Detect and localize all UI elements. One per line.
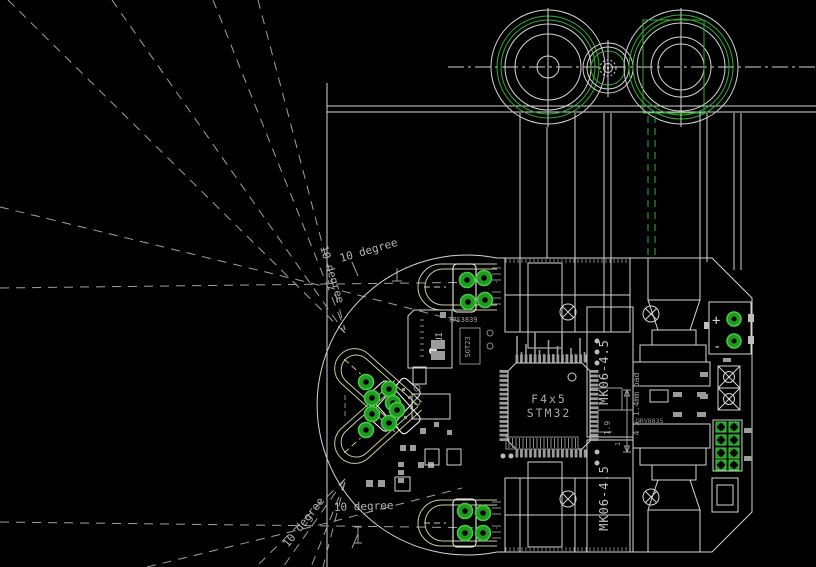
dim-gap-label: 1.9 (603, 421, 612, 436)
mounting-holes[interactable] (718, 366, 740, 410)
angle-label-diag-bottom: 10 degree (280, 495, 327, 550)
battery-connector[interactable]: + - (704, 302, 754, 355)
angle-label-front-top: 10 degree (338, 236, 399, 265)
motor-mount-bottom[interactable] (633, 424, 710, 552)
program-connector[interactable] (713, 420, 742, 471)
supervisor-package-label: SOT23 (464, 336, 472, 357)
voltage-supervisor[interactable]: TPS3839 SOT23 (448, 316, 480, 364)
mcu-label-line2: STM32 (527, 406, 572, 420)
dim-one-label: 1 (614, 442, 622, 446)
angle-label-front-bottom: 10 degree (334, 499, 394, 514)
sensor-beam-lines (0, 0, 497, 567)
buzzer[interactable]: PUI (408, 310, 452, 368)
motor-driver-label: DRV8835 (636, 417, 663, 425)
mcu-chip[interactable]: F4x5 STM32 (500, 332, 599, 458)
power-switch[interactable] (712, 478, 738, 512)
motor-bottom-label: MK06-4.5 (597, 465, 611, 531)
cad-canvas[interactable]: 10 degree 10 degree 10 degree 10 degree (0, 0, 816, 567)
motor-mount-top[interactable] (633, 258, 710, 386)
dim-pad-label: 4 x 1.4mm pad (632, 373, 641, 436)
motor-top-label: MK06-4.5 (597, 339, 611, 405)
mcu-label-line1: F4x5 (531, 392, 567, 406)
motor-bottom[interactable]: MK06-4.5 (587, 440, 633, 552)
battery-minus-label: - (713, 339, 721, 355)
supervisor-label: TPS3839 (448, 316, 478, 324)
cad-viewport[interactable]: 10 degree 10 degree 10 degree 10 degree (0, 0, 816, 567)
battery-plus-label: + (712, 313, 720, 329)
